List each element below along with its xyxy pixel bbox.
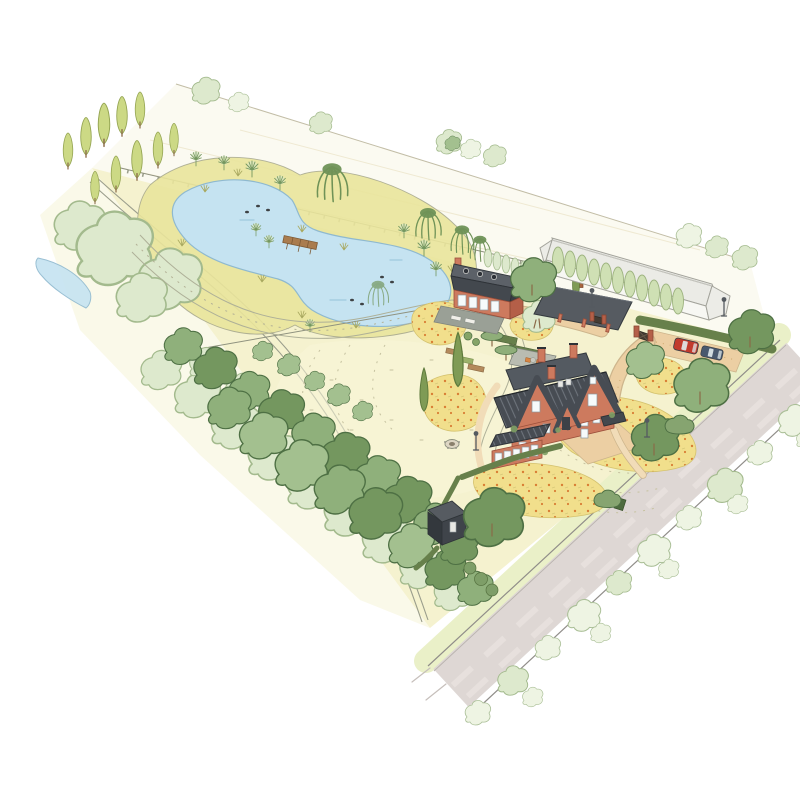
sketch-tree-icon — [676, 224, 701, 248]
sketch-tree-icon — [705, 236, 728, 258]
landscape-plan-illustration: Hand-drawn aerial landscape plan of a co… — [0, 0, 800, 800]
clipped-dome-shrub — [464, 562, 476, 574]
hornbeam-icon — [502, 255, 510, 273]
site-plan-svg: Hand-drawn aerial landscape plan of a co… — [0, 0, 800, 800]
conifer-icon — [649, 280, 660, 306]
duck-icon — [245, 211, 249, 214]
sketch-tree-icon — [732, 246, 757, 270]
dormer-window-icon — [463, 268, 468, 273]
poplar-tree-icon — [117, 97, 128, 137]
conifer-icon — [589, 259, 600, 285]
gate-pillar — [648, 330, 653, 341]
hornbeam-icon — [484, 249, 492, 267]
box-ball-icon — [473, 339, 480, 346]
poplar-tree-icon — [98, 103, 109, 146]
gate-pillar — [602, 315, 606, 324]
chimney — [548, 366, 555, 379]
gable-window — [532, 401, 540, 412]
front-door — [562, 417, 570, 430]
conifer-icon — [613, 267, 624, 293]
chimney — [570, 344, 577, 358]
attic-window — [590, 377, 596, 384]
box-ball-icon — [464, 332, 472, 340]
climber-plant-icon — [511, 426, 518, 433]
chimney — [538, 348, 545, 362]
climber-plant-icon — [555, 427, 561, 433]
sketch-tree-icon — [461, 139, 481, 159]
dormer-window-icon — [491, 274, 496, 279]
conifer-icon — [661, 284, 672, 310]
conifer-icon — [601, 263, 612, 289]
sketch-tree-icon — [229, 92, 249, 112]
duck-icon — [380, 276, 384, 279]
garden-table — [531, 358, 536, 363]
gable-window — [588, 394, 597, 406]
dormer-window-icon — [477, 271, 482, 276]
climber-plant-icon — [609, 412, 615, 418]
roof-vent — [558, 381, 563, 387]
gate-pillar — [590, 312, 594, 321]
duck-icon — [390, 281, 394, 284]
window — [581, 429, 588, 438]
poplar-tree-icon — [63, 133, 73, 169]
clipped-dome-shrub — [475, 573, 488, 586]
duck-icon — [256, 205, 260, 208]
gate-pillar — [634, 326, 639, 337]
sketch-tree-icon — [192, 77, 220, 104]
glass-door — [491, 301, 499, 312]
conifer-icon — [577, 255, 588, 281]
roof-vent — [566, 379, 571, 385]
conifer-icon — [565, 251, 576, 277]
conifer-icon — [673, 288, 684, 314]
conifer-icon — [625, 271, 636, 297]
garden-chair — [525, 358, 531, 363]
glass-door — [480, 299, 488, 310]
duck-icon — [266, 209, 270, 212]
clipped-dome-shrub — [486, 584, 498, 596]
sketch-tree-icon — [483, 145, 506, 167]
conifer-icon — [637, 275, 648, 301]
duck-icon — [350, 299, 354, 302]
duck-icon — [360, 303, 364, 306]
glass-door — [469, 297, 477, 308]
glass-door — [458, 295, 466, 306]
poplar-tree-icon — [81, 118, 92, 158]
shed-door — [450, 522, 456, 532]
sketch-tree-icon — [309, 112, 332, 134]
hornbeam-icon — [493, 252, 501, 270]
